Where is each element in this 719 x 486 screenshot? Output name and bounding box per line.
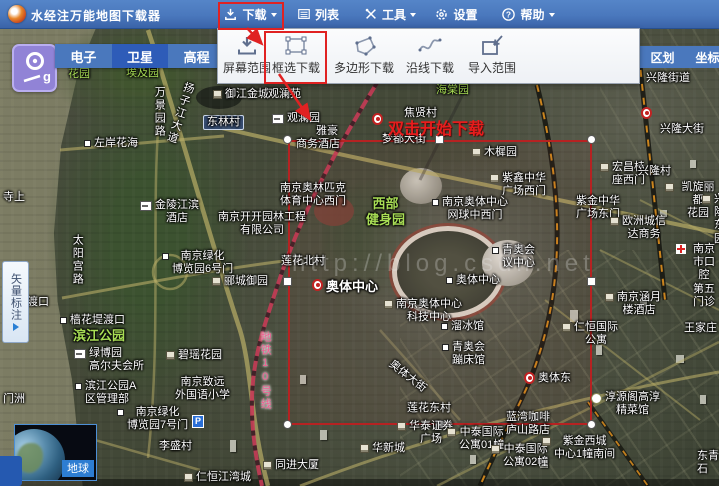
dropdown-item-along-line[interactable]: 沿线下载 [402,31,458,79]
selection-handle-se[interactable] [587,420,596,429]
menu-settings[interactable]: 设置 [434,3,478,25]
screen-range-icon [234,34,260,58]
menu-list[interactable]: 列表 [296,3,340,25]
dropdown-item-label: 导入范围 [468,59,516,76]
selection-handle-n[interactable] [435,135,444,144]
earth-view-widget[interactable]: 地球 [14,424,97,481]
svg-text:?: ? [506,9,511,19]
dropdown-item-import-range[interactable]: 导入范围 [462,31,522,79]
settings-icon [434,7,449,22]
list-icon [297,7,311,21]
chevron-down-icon [271,13,277,17]
tab-district[interactable]: 区划 [640,46,685,68]
polygon-download-icon [351,34,377,58]
vector-panel-label: 矢量标注 [8,273,24,321]
tab-satellite[interactable]: 卫星 [112,44,169,68]
dropdown-item-screen-range[interactable]: 屏幕范围 [220,31,274,79]
right-tabbar: 区划坐标 [640,46,719,68]
dropdown-item-label: 屏幕范围 [223,59,271,76]
map-pin-icon: g [14,46,55,90]
menu-tools[interactable]: 工具 [362,3,418,25]
menu-label: 列表 [315,6,339,23]
app-logo-icon [8,5,26,23]
download-selection-box[interactable] [288,140,592,425]
chevron-down-icon [410,13,416,17]
tab-label: 高程 [184,47,210,66]
selection-handle-ne[interactable] [587,135,596,144]
titlebar: 水经注万能地图下载器 下载列表工具设置?帮助 [0,0,719,29]
tab-label: 卫星 [127,47,153,66]
menu-label: 帮助 [520,6,544,23]
menu-download[interactable]: 下载 [219,3,281,25]
along-line-icon [417,34,443,58]
menu-label: 下载 [242,6,266,23]
earth-label: 地球 [62,460,94,477]
dropdown-item-label: 多边形下载 [334,59,394,76]
menu-label: 工具 [382,6,406,23]
chevron-down-icon [549,13,555,17]
tab-coordinates[interactable]: 坐标 [685,46,719,68]
selection-handle-w[interactable] [283,277,292,286]
download-dropdown-panel: 屏幕范围框选下载多边形下载沿线下载导入范围 [217,28,640,84]
tab-label: 电子 [70,47,96,66]
selection-handle-e[interactable] [587,277,596,286]
dropdown-item-polygon-download[interactable]: 多边形下载 [330,31,398,79]
tab-label: 坐标 [695,49,719,66]
menu-label: 设置 [453,6,477,23]
import-range-icon [479,34,505,58]
dropdown-item-label: 框选下载 [272,59,320,76]
corner-control[interactable] [0,456,22,486]
dropdown-item-label: 沿线下载 [406,59,454,76]
download-icon [223,7,238,22]
expand-arrow-icon [13,323,19,331]
vector-annotation-panel[interactable]: 矢量标注 [2,261,29,343]
tools-icon [364,7,378,21]
app-title: 水经注万能地图下载器 [31,7,161,24]
layers-logo-button[interactable]: g [12,44,57,92]
selection-handle-nw[interactable] [283,135,292,144]
map-type-tabbar: 电子卫星高程 [55,44,225,68]
selection-handle-s[interactable] [435,420,444,429]
selection-handle-sw[interactable] [283,420,292,429]
dropdown-item-box-select[interactable]: 框选下载 [268,31,324,79]
tab-electronic[interactable]: 电子 [55,44,112,68]
tab-label: 区划 [650,49,674,66]
menu-help[interactable]: ?帮助 [500,3,556,25]
help-icon: ? [501,7,516,22]
box-select-icon [283,34,309,58]
svg-text:g: g [43,69,51,84]
app-window: 花园埃及园万景园路扬子江大道御江金城观澜苑观澜园东林村雅豪商务酒店左岸花海焦贤村… [0,0,719,486]
